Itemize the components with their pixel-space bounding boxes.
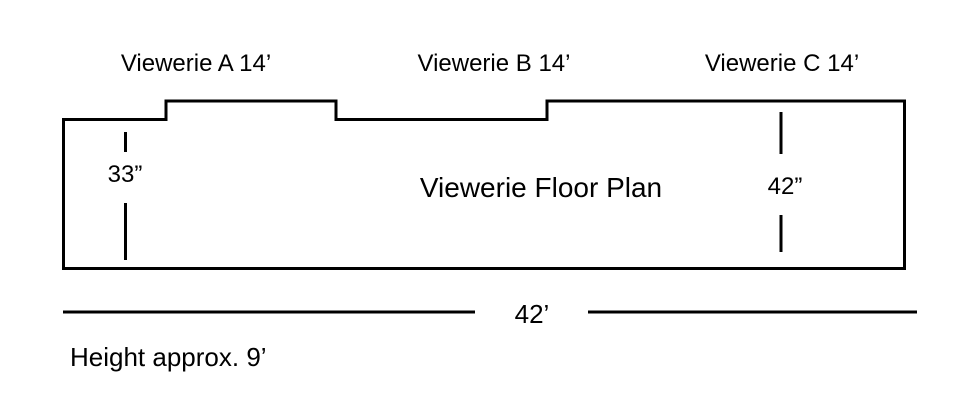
floor-plan-diagram: Viewerie A 14’ Viewerie B 14’ Viewerie C… — [0, 0, 975, 400]
left-depth-value: 33” — [108, 161, 143, 188]
left-depth-dimension: 33” — [108, 132, 143, 260]
floor-plan-title: Viewerie Floor Plan — [420, 172, 662, 203]
right-depth-dimension: 42” — [768, 112, 803, 252]
section-label-a: Viewerie A 14’ — [121, 50, 271, 77]
floor-plan-svg: Viewerie A 14’ Viewerie B 14’ Viewerie C… — [0, 0, 975, 400]
section-label-b: Viewerie B 14’ — [418, 50, 571, 77]
right-depth-value: 42” — [768, 173, 803, 200]
total-width-value: 42’ — [515, 299, 550, 329]
total-width-dimension: 42’ — [63, 299, 917, 329]
height-note: Height approx. 9’ — [70, 342, 267, 372]
section-label-c: Viewerie C 14’ — [705, 50, 859, 77]
